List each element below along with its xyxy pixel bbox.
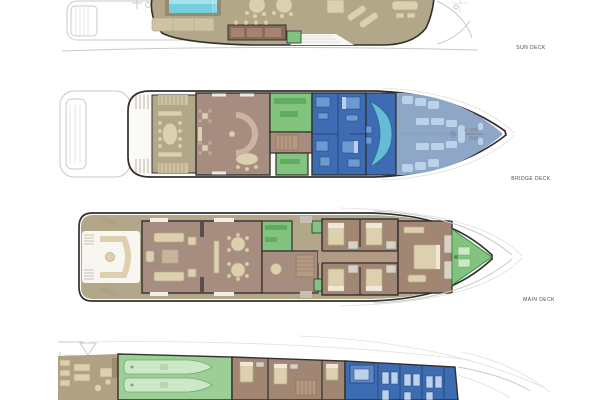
lower-deck-section <box>0 330 600 400</box>
main-deck-section <box>0 207 600 307</box>
bridge-deck-label: BRIDGE DECK <box>496 176 566 182</box>
tender-boat <box>124 378 212 392</box>
yacht-deck-plans: SUN DECK BRIDGE DECK MAIN DECK <box>0 0 600 400</box>
galley <box>270 93 312 132</box>
crew-mess <box>350 365 374 383</box>
tender-garage <box>118 354 232 400</box>
stair-lobby <box>270 132 312 153</box>
bridge-deck-section <box>0 85 600 190</box>
crew-quarters <box>345 361 458 400</box>
lower-stairs <box>296 380 316 395</box>
tender-boat <box>124 360 212 374</box>
aft-deck-dining <box>152 95 196 173</box>
lower-deck-plan <box>0 330 600 400</box>
sky-lounge <box>196 93 270 175</box>
bridge-deck-plan <box>0 85 600 190</box>
main-deck-label: MAIN DECK <box>504 297 574 303</box>
sun-deck-label: SUN DECK <box>496 45 566 51</box>
pantry <box>276 153 308 175</box>
guest-cabins <box>318 219 402 295</box>
captain-cabin-area <box>312 93 366 175</box>
foredeck <box>396 93 502 175</box>
pool <box>165 0 221 16</box>
main-deck-plan <box>0 207 600 307</box>
lower-guest-cabins <box>232 357 345 400</box>
main-salon <box>142 218 262 296</box>
sun-lounge-pads <box>152 18 214 31</box>
wheelhouse <box>366 93 396 175</box>
deck-below-outline <box>62 47 478 51</box>
beach-club <box>58 354 120 400</box>
pantry <box>262 221 292 251</box>
ghost-outline-aft <box>60 91 130 177</box>
tv-cabinet <box>327 0 344 13</box>
master-suite <box>398 221 452 293</box>
ghost-outline-bow <box>437 0 472 44</box>
